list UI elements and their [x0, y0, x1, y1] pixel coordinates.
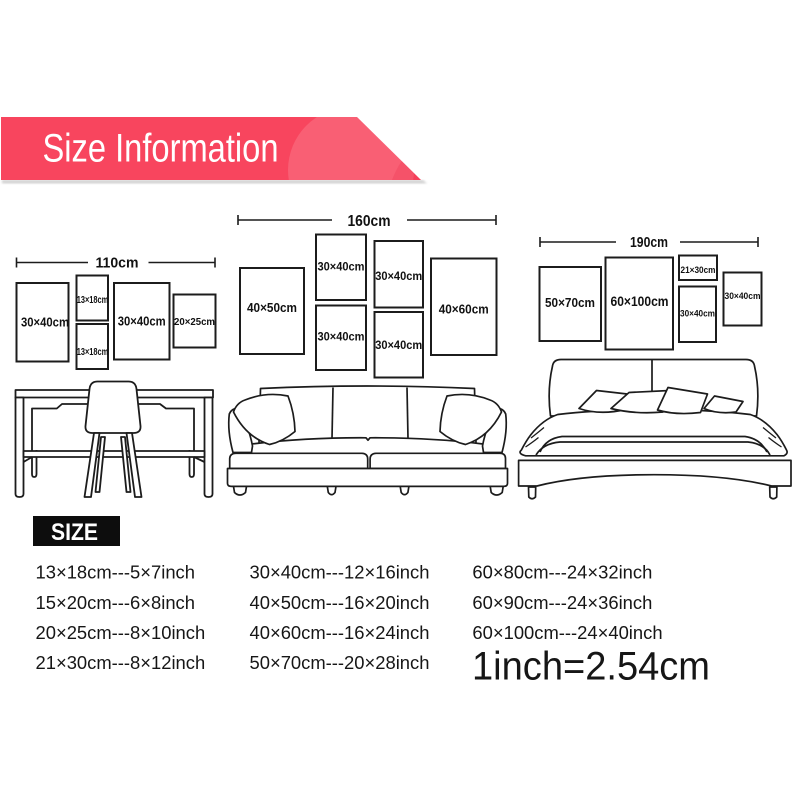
- svg-text:Size Information: Size Information: [43, 127, 279, 171]
- svg-text:15×20cm---6×8inch: 15×20cm---6×8inch: [36, 592, 195, 613]
- svg-text:30×40cm: 30×40cm: [318, 330, 365, 344]
- svg-text:30×40cm: 30×40cm: [725, 291, 761, 302]
- svg-text:50×70cm: 50×70cm: [545, 296, 595, 310]
- svg-text:21×30cm---8×12inch: 21×30cm---8×12inch: [36, 652, 206, 673]
- svg-text:30×40cm: 30×40cm: [21, 316, 69, 330]
- svg-text:30×40cm: 30×40cm: [375, 338, 422, 352]
- svg-text:13×18cm---5×7inch: 13×18cm---5×7inch: [36, 562, 195, 583]
- svg-text:30×40cm: 30×40cm: [375, 269, 422, 283]
- svg-text:40×50cm---16×20inch: 40×50cm---16×20inch: [250, 592, 430, 613]
- svg-text:60×80cm---24×32inch: 60×80cm---24×32inch: [472, 562, 652, 583]
- svg-text:13×18cm: 13×18cm: [77, 347, 109, 358]
- svg-text:SIZE: SIZE: [51, 519, 98, 546]
- svg-text:30×40cm: 30×40cm: [118, 315, 166, 329]
- svg-text:13×18cm: 13×18cm: [77, 295, 109, 306]
- svg-text:190cm: 190cm: [630, 235, 668, 251]
- svg-text:60×100cm---24×40inch: 60×100cm---24×40inch: [472, 622, 662, 643]
- svg-text:50×70cm---20×28inch: 50×70cm---20×28inch: [250, 652, 430, 673]
- svg-text:20×25cm---8×10inch: 20×25cm---8×10inch: [36, 622, 206, 643]
- svg-text:40×60cm: 40×60cm: [439, 303, 489, 317]
- svg-text:110cm: 110cm: [96, 256, 139, 272]
- svg-text:20×25cm: 20×25cm: [174, 316, 215, 328]
- svg-text:1inch=2.54cm: 1inch=2.54cm: [472, 645, 710, 689]
- svg-text:30×40cm---12×16inch: 30×40cm---12×16inch: [250, 562, 430, 583]
- svg-text:30×40cm: 30×40cm: [318, 260, 365, 274]
- svg-text:160cm: 160cm: [348, 213, 391, 230]
- svg-text:21×30cm: 21×30cm: [681, 265, 716, 275]
- svg-text:30×40cm: 30×40cm: [680, 309, 715, 320]
- svg-text:40×60cm---16×24inch: 40×60cm---16×24inch: [250, 622, 430, 643]
- svg-text:60×100cm: 60×100cm: [611, 294, 669, 309]
- svg-text:60×90cm---24×36inch: 60×90cm---24×36inch: [472, 592, 652, 613]
- svg-text:40×50cm: 40×50cm: [247, 301, 297, 315]
